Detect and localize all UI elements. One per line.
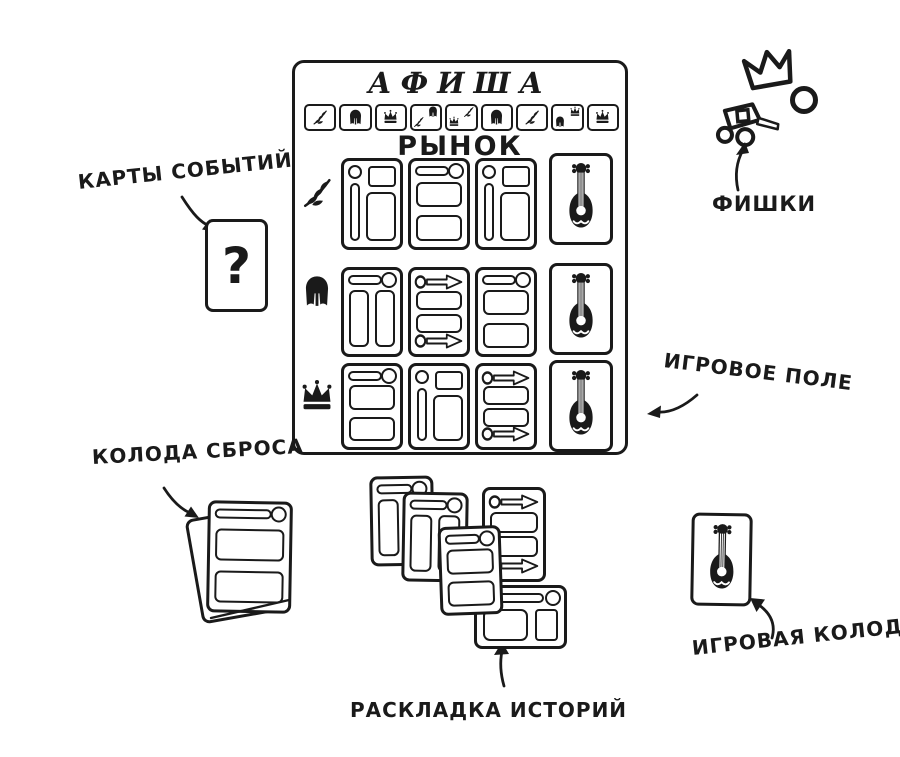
card-sketch-shape	[535, 609, 558, 641]
card-sketch-shape	[416, 314, 462, 333]
market-card	[475, 158, 537, 250]
arrow-to-tokens-icon	[730, 142, 756, 194]
strip-cell	[375, 104, 407, 131]
card-sketch-shape	[381, 368, 397, 384]
tokens-label: ФИШКИ	[712, 192, 816, 216]
branch-icon	[413, 116, 425, 128]
strip-cell	[339, 104, 371, 131]
crown-row-icon	[298, 376, 336, 418]
crown-icon	[594, 109, 611, 126]
card-sketch-shape	[515, 272, 531, 288]
card-arrow-row	[488, 494, 540, 510]
ring-token-icon	[790, 86, 818, 114]
card-sketch-shape	[445, 534, 480, 545]
card-arrow-row	[481, 370, 531, 386]
strip-cell	[410, 104, 442, 131]
discard-pile	[193, 498, 303, 630]
lute-icon	[703, 522, 740, 597]
card-sketch-shape	[350, 183, 360, 241]
card-sketch-shape	[433, 395, 463, 441]
card-sketch-shape	[416, 291, 462, 310]
helmet-icon	[488, 109, 505, 126]
card-arrow-row	[481, 426, 531, 442]
card-sketch-shape	[348, 165, 362, 179]
strip-cell	[551, 104, 583, 131]
card-sketch-shape	[416, 182, 462, 208]
card-sketch-shape	[435, 371, 463, 390]
card-sketch-shape	[483, 323, 529, 348]
resource-track	[304, 104, 619, 131]
strip-cell	[587, 104, 619, 131]
market-card	[475, 267, 537, 357]
card-sketch-shape	[482, 165, 496, 179]
card-sketch-shape	[479, 530, 496, 547]
card-sketch-shape	[415, 166, 449, 176]
discard-pile-label: КОЛОДА СБРОСА	[91, 434, 304, 469]
lute-icon	[563, 272, 599, 346]
branch-icon	[524, 109, 541, 126]
card-sketch-shape	[417, 388, 427, 441]
card-sketch-shape	[215, 508, 272, 519]
card-sketch-shape	[416, 215, 462, 241]
card-sketch-shape	[483, 290, 529, 315]
market-card	[408, 363, 470, 450]
card-sketch-shape	[483, 408, 529, 427]
lute-icon	[563, 162, 599, 236]
strip-cell	[516, 104, 548, 131]
card-sketch-shape	[409, 515, 432, 572]
strip-cell	[304, 104, 336, 131]
market-card	[408, 267, 470, 357]
card-sketch-shape	[482, 275, 516, 285]
game-deck-card	[690, 512, 753, 606]
market-card	[341, 158, 403, 250]
card-sketch-shape	[483, 386, 529, 405]
arrow-to-story-layout-icon	[488, 642, 516, 690]
card-sketch-shape	[366, 192, 396, 241]
arrow-to-game-board-icon	[645, 390, 701, 420]
question-mark: ?	[222, 237, 251, 295]
card-sketch-shape	[415, 370, 429, 384]
card-sketch-shape	[375, 290, 395, 347]
board-deck-card	[549, 153, 613, 245]
game-board: АФИША РЫНОК	[292, 60, 628, 455]
card-sketch-shape	[271, 506, 287, 522]
card-sketch-shape	[484, 183, 494, 241]
helmet-icon	[427, 106, 439, 118]
board-title: АФИША	[295, 66, 625, 100]
board-game-setup-diagram: АФИША РЫНОК КАРТЫ СОБЫТИЙ ? ФИШКИ ИГРОВО…	[0, 0, 900, 757]
crown-icon	[569, 106, 581, 118]
market-card	[408, 158, 470, 250]
card-sketch-shape	[545, 590, 561, 606]
card-sketch-shape	[348, 275, 382, 285]
card-sketch-shape	[447, 580, 495, 607]
card-sketch-shape	[215, 529, 285, 562]
market-card	[341, 363, 403, 450]
card-sketch-shape	[349, 290, 369, 347]
card-sketch-shape	[446, 497, 462, 513]
branch-row-icon	[301, 169, 335, 217]
branch-icon	[312, 109, 329, 126]
card-sketch-shape	[349, 417, 395, 441]
card-sketch-shape	[502, 166, 530, 187]
card-sketch-shape	[378, 499, 400, 556]
card-sketch-shape	[349, 385, 395, 409]
lute-icon	[563, 369, 599, 443]
discard-fold-line	[209, 596, 295, 622]
game-deck-label: ИГРОВАЯ КОЛОДА	[691, 612, 900, 660]
card-sketch-shape	[500, 192, 530, 241]
strip-cell	[481, 104, 513, 131]
helmet-row-icon	[300, 269, 334, 315]
crown-icon	[382, 109, 399, 126]
market-card	[475, 363, 537, 450]
card-arrow-row	[414, 333, 464, 349]
event-cards-label: КАРТЫ СОБЫТИЙ	[77, 148, 294, 194]
branch-icon	[463, 106, 475, 118]
card-arrow-row	[414, 274, 464, 290]
card-sketch-shape	[446, 548, 494, 575]
event-card: ?	[205, 219, 268, 312]
card-sketch-shape	[368, 166, 396, 187]
strip-cell	[445, 104, 477, 131]
board-deck-card	[549, 263, 613, 355]
card-sketch-shape	[381, 272, 397, 288]
game-board-label: ИГРОВОЕ ПОЛЕ	[663, 348, 855, 395]
helmet-icon	[347, 109, 364, 126]
crown-icon	[448, 116, 460, 128]
card-sketch-shape	[409, 500, 447, 511]
board-deck-card	[549, 360, 613, 452]
helmet-icon	[554, 116, 566, 128]
market-card	[341, 267, 403, 357]
story-layout-label: РАСКЛАДКА ИСТОРИЙ	[350, 698, 627, 722]
card-sketch-shape	[448, 163, 464, 179]
story-card	[437, 525, 503, 616]
card-sketch-shape	[348, 371, 382, 381]
